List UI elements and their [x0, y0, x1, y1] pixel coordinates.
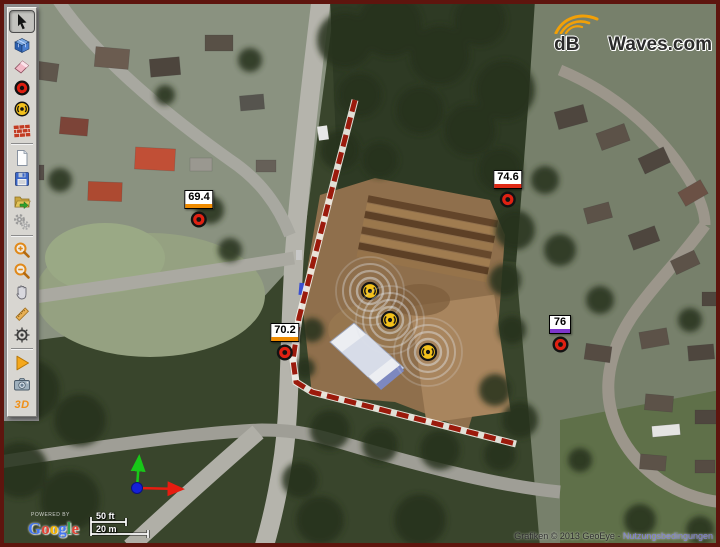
- add-source-tool-button[interactable]: [9, 99, 35, 120]
- folder-arrow-icon: [12, 191, 32, 211]
- zoom-in-button[interactable]: [9, 239, 35, 260]
- google-wordmark: Google: [28, 519, 79, 539]
- run-calculation-button[interactable]: [9, 352, 35, 373]
- add-barrier-tool-button[interactable]: [9, 120, 35, 141]
- save-button[interactable]: [9, 169, 35, 190]
- map-attribution: Grafiken © 2013 GeoEye - Nutzungsbedingu…: [514, 531, 713, 541]
- level-color-band: [185, 204, 212, 208]
- receiver-dot-icon: [551, 335, 570, 354]
- receiver-circle-icon: [12, 78, 32, 98]
- logo-arcs-icon: [554, 12, 600, 34]
- toolbar-separator: [11, 235, 33, 237]
- toolbar: 3D: [7, 7, 37, 417]
- eraser-icon: [12, 56, 32, 76]
- receiver-dot-icon: [189, 210, 208, 229]
- play-triangle-icon: [12, 353, 32, 373]
- receiver-marker[interactable]: 74.6: [493, 170, 522, 209]
- measure-button[interactable]: [9, 303, 35, 324]
- attribution-text: Grafiken © 2013 GeoEye -: [514, 531, 623, 541]
- camera-icon: [12, 374, 32, 394]
- scale-metric-label: 20 m: [96, 524, 117, 534]
- pan-button[interactable]: [9, 282, 35, 303]
- cube-3d-icon: [12, 35, 32, 55]
- magnifier-minus-icon: [12, 261, 32, 281]
- receiver-value-label: 69.4: [184, 190, 213, 209]
- add-receiver-tool-button[interactable]: [9, 77, 35, 98]
- receiver-dot-icon: [498, 190, 517, 209]
- open-button[interactable]: [9, 190, 35, 211]
- terms-link[interactable]: Nutzungsbedingungen: [623, 531, 713, 541]
- view-3d-label: 3D: [14, 399, 29, 411]
- receiver-marker[interactable]: 70.2: [270, 323, 299, 362]
- cursor-arrow-icon: [12, 12, 32, 32]
- compass-button[interactable]: [9, 324, 35, 345]
- level-color-band: [494, 184, 521, 188]
- settings-button[interactable]: [9, 212, 35, 233]
- ruler-icon: [12, 304, 32, 324]
- gears-icon: [12, 212, 32, 232]
- brick-wall-icon: [12, 121, 32, 141]
- level-color-band: [550, 329, 570, 333]
- logo-suffix: Waves.com: [608, 34, 712, 56]
- new-project-button[interactable]: [9, 147, 35, 168]
- magnifier-plus-icon: [12, 240, 32, 260]
- toolbar-separator: [11, 143, 33, 145]
- receiver-value-label: 76: [549, 315, 571, 334]
- model-3d-tool-button[interactable]: [9, 34, 35, 55]
- floppy-disk-icon: [12, 169, 32, 189]
- snapshot-button[interactable]: [9, 373, 35, 394]
- level-color-band: [271, 337, 298, 341]
- helm-wheel-icon: [12, 325, 32, 345]
- source-circle-icon: [12, 99, 32, 119]
- source-marker[interactable]: [392, 316, 464, 388]
- logo-prefix: dB: [554, 34, 579, 56]
- source-dot-icon: [392, 316, 464, 388]
- receiver-dot-icon: [275, 343, 294, 362]
- eraser-tool-button[interactable]: [9, 56, 35, 77]
- select-tool-button[interactable]: [9, 10, 35, 33]
- dbwaves-logo: dB Waves.com: [554, 12, 712, 56]
- scale-imperial-label: 50 ft: [96, 511, 115, 521]
- blank-page-icon: [12, 148, 32, 168]
- zoom-out-button[interactable]: [9, 260, 35, 281]
- receiver-value-label: 74.6: [493, 170, 522, 189]
- powered-by-text: POWERED BY: [31, 512, 70, 518]
- toolbar-separator: [11, 348, 33, 350]
- receiver-marker[interactable]: 69.4: [184, 190, 213, 229]
- receiver-value-label: 70.2: [270, 323, 299, 342]
- view-3d-button[interactable]: 3D: [9, 395, 35, 416]
- hand-icon: [12, 282, 32, 302]
- receiver-marker[interactable]: 76: [549, 315, 571, 354]
